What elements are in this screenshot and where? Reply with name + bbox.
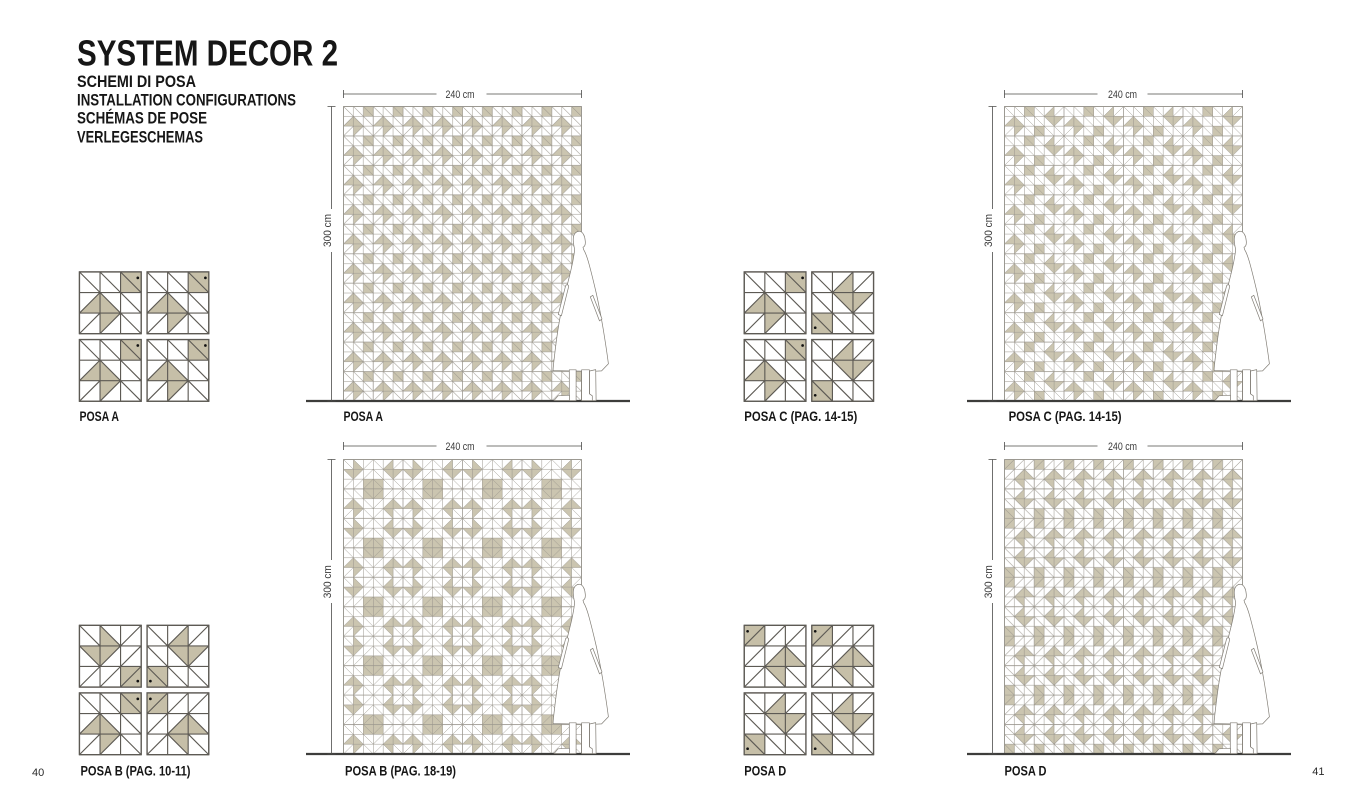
svg-text:240 cm: 240 cm — [446, 441, 475, 453]
svg-text:POSA C (PAG. 14-15): POSA C (PAG. 14-15) — [1009, 409, 1122, 424]
svg-text:SYSTEM DECOR 2: SYSTEM DECOR 2 — [77, 33, 338, 74]
svg-text:POSA B (PAG. 18-19): POSA B (PAG. 18-19) — [345, 763, 456, 778]
svg-text:240 cm: 240 cm — [1108, 89, 1137, 101]
svg-text:POSA D: POSA D — [744, 763, 786, 778]
svg-text:POSA A: POSA A — [344, 409, 384, 424]
svg-text:240 cm: 240 cm — [446, 89, 475, 101]
svg-text:240 cm: 240 cm — [1108, 441, 1137, 453]
svg-text:POSA B (PAG. 10-11): POSA B (PAG. 10-11) — [81, 763, 191, 778]
svg-text:41: 41 — [1312, 766, 1324, 778]
svg-text:300 cm: 300 cm — [322, 565, 334, 598]
svg-text:VERLEGESCHEMAS: VERLEGESCHEMAS — [77, 128, 203, 146]
svg-text:300 cm: 300 cm — [322, 214, 334, 247]
svg-text:POSA D: POSA D — [1005, 763, 1047, 778]
svg-text:SCHÉMAS DE POSE: SCHÉMAS DE POSE — [77, 109, 207, 128]
svg-text:SCHEMI DI POSA: SCHEMI DI POSA — [77, 73, 196, 91]
svg-text:40: 40 — [32, 767, 44, 779]
svg-text:300 cm: 300 cm — [983, 565, 995, 598]
svg-text:POSA A: POSA A — [80, 409, 120, 424]
svg-text:POSA C (PAG. 14-15): POSA C (PAG. 14-15) — [744, 409, 857, 424]
svg-text:300 cm: 300 cm — [983, 214, 995, 247]
svg-text:INSTALLATION CONFIGURATIONS: INSTALLATION CONFIGURATIONS — [77, 91, 296, 109]
